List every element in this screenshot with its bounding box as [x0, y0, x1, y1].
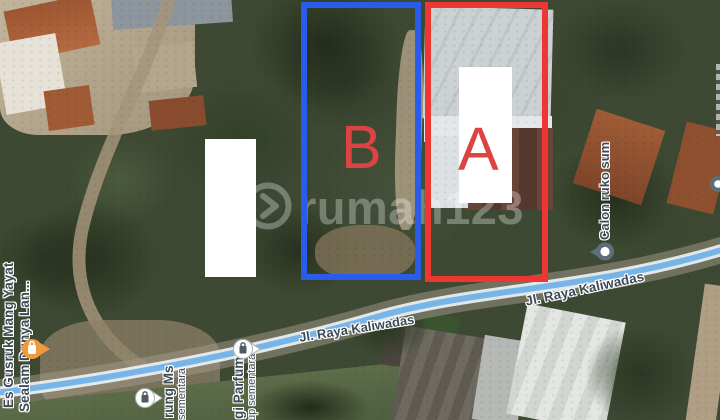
place-pin-icon-calon-ruko [589, 240, 617, 262]
food-pin-icon [21, 337, 51, 361]
zone-a-label: A [458, 119, 499, 180]
zone-b-label: B [341, 117, 382, 178]
clipped-pin-right-edge [708, 175, 720, 193]
clipped-label-right-edge [716, 64, 720, 136]
shop-pin-icon-parfume [232, 337, 262, 361]
white-cover-rect-left [205, 139, 256, 277]
poi-label-calon-ruko-sum: Calon ruko sum [597, 142, 612, 240]
map-canvas: rumah123 B A Jl. Raya Kaliwadas Jl. Raya… [0, 0, 720, 420]
poi-label-warung-status: sementara [176, 368, 188, 420]
poi-label-parfume-status: up sementara [246, 354, 258, 420]
poi-label-es-gusruk-line1: Es Gusruk Mang Yayat [1, 263, 16, 408]
shop-pin-icon-warung [134, 386, 164, 410]
